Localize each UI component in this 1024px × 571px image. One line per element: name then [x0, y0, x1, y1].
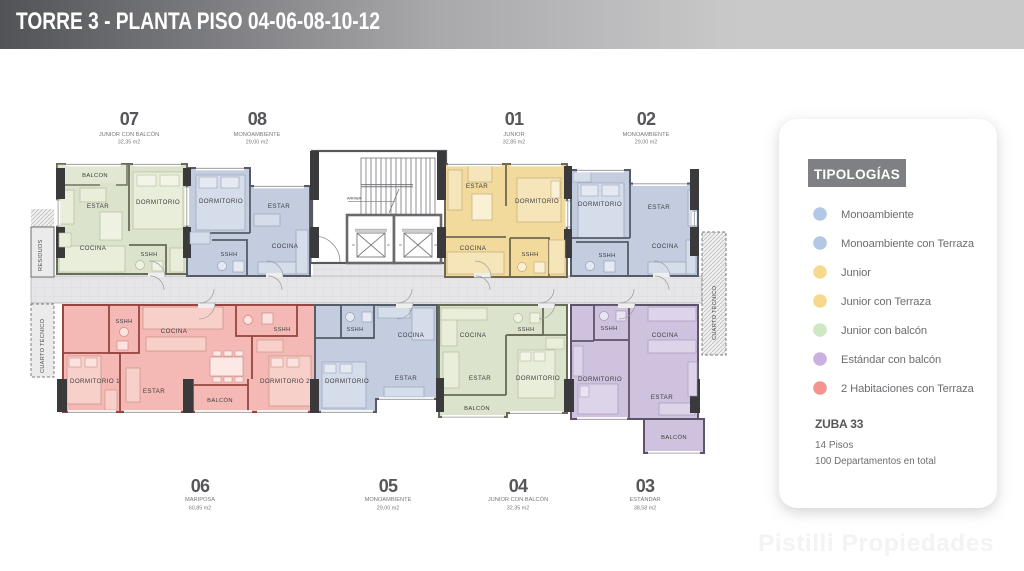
- svg-text:38,58 m2: 38,58 m2: [634, 506, 656, 512]
- svg-text:DORMITORIO: DORMITORIO: [199, 198, 243, 205]
- svg-text:32,35 m2: 32,35 m2: [507, 506, 529, 512]
- svg-text:ARRIBA: ARRIBA: [347, 197, 362, 201]
- svg-text:ESTAR: ESTAR: [143, 388, 165, 395]
- svg-text:SSHH: SSHH: [517, 327, 534, 333]
- svg-text:JUNIOR: JUNIOR: [503, 132, 524, 138]
- svg-text:CUARTO TÉCNICO: CUARTO TÉCNICO: [711, 285, 718, 340]
- svg-text:ESTAR: ESTAR: [651, 394, 673, 401]
- svg-text:Junior con balcón: Junior con balcón: [841, 325, 927, 337]
- svg-text:2 Habitaciones con Terraza: 2 Habitaciones con Terraza: [841, 383, 975, 395]
- svg-text:02: 02: [637, 109, 656, 129]
- svg-text:ESTAR: ESTAR: [466, 183, 488, 190]
- svg-text:04: 04: [509, 476, 528, 496]
- svg-text:ZUBA 33: ZUBA 33: [815, 417, 864, 431]
- svg-text:Estándar con balcón: Estándar con balcón: [841, 354, 941, 366]
- svg-text:SSHH: SSHH: [598, 253, 615, 259]
- svg-text:JUNIOR CON BALCÓN: JUNIOR CON BALCÓN: [488, 496, 548, 503]
- svg-text:SSHH: SSHH: [346, 327, 363, 333]
- svg-text:RESIDUOS: RESIDUOS: [38, 239, 44, 271]
- svg-text:08: 08: [248, 109, 267, 129]
- svg-text:SSHH: SSHH: [521, 252, 538, 258]
- svg-text:SSHH: SSHH: [140, 252, 157, 258]
- svg-text:BALCÓN: BALCÓN: [661, 434, 687, 441]
- svg-text:32,85 m2: 32,85 m2: [503, 140, 525, 146]
- svg-text:Junior: Junior: [841, 267, 871, 279]
- svg-text:CUARTO TÉCNICO: CUARTO TÉCNICO: [39, 318, 46, 373]
- svg-text:MONOAMBIENTE: MONOAMBIENTE: [623, 132, 670, 138]
- svg-text:ESTAR: ESTAR: [469, 375, 491, 382]
- svg-text:29,00 m2: 29,00 m2: [246, 140, 268, 146]
- svg-text:60,85 m2: 60,85 m2: [189, 506, 211, 512]
- svg-text:COCINA: COCINA: [272, 243, 299, 250]
- svg-text:SSHH: SSHH: [273, 327, 290, 333]
- svg-text:JUNIOR CON BALCÓN: JUNIOR CON BALCÓN: [99, 131, 159, 138]
- svg-text:MONOAMBIENTE: MONOAMBIENTE: [234, 132, 281, 138]
- svg-text:BALCÓN: BALCÓN: [207, 397, 233, 404]
- svg-text:DORMITORIO 1: DORMITORIO 1: [70, 378, 120, 385]
- svg-text:COCINA: COCINA: [460, 245, 487, 252]
- svg-text:TORRE 3 - PLANTA PISO 04-06-08: TORRE 3 - PLANTA PISO 04-06-08-10-12: [16, 8, 380, 35]
- svg-text:DORMITORIO: DORMITORIO: [578, 201, 622, 208]
- svg-text:14 Pisos: 14 Pisos: [815, 440, 853, 451]
- svg-text:Junior con Terraza: Junior con Terraza: [841, 296, 932, 308]
- svg-text:Pistilli Propiedades: Pistilli Propiedades: [758, 530, 994, 557]
- svg-text:03: 03: [636, 476, 655, 496]
- svg-text:DORMITORIO: DORMITORIO: [136, 199, 180, 206]
- svg-text:01: 01: [505, 109, 524, 129]
- svg-text:COCINA: COCINA: [161, 328, 188, 335]
- svg-text:COCINA: COCINA: [460, 332, 487, 339]
- svg-text:COCINA: COCINA: [652, 243, 679, 250]
- svg-text:29,00 m2: 29,00 m2: [635, 140, 657, 146]
- svg-text:BALCON: BALCON: [82, 173, 108, 179]
- svg-text:MARIPOSA: MARIPOSA: [185, 497, 215, 503]
- svg-text:DORMITORIO: DORMITORIO: [515, 198, 559, 205]
- svg-text:29,00 m2: 29,00 m2: [377, 506, 399, 512]
- svg-text:ESTAR: ESTAR: [87, 203, 109, 210]
- svg-text:ESTÁNDAR: ESTÁNDAR: [630, 496, 661, 503]
- svg-text:BALCÓN: BALCÓN: [464, 405, 490, 412]
- svg-text:DORMITORIO: DORMITORIO: [516, 375, 560, 382]
- svg-text:07: 07: [120, 109, 139, 129]
- svg-text:32,35 m2: 32,35 m2: [118, 140, 140, 146]
- svg-text:COCINA: COCINA: [652, 332, 679, 339]
- svg-text:DORMITORIO: DORMITORIO: [578, 376, 622, 383]
- svg-text:ESTAR: ESTAR: [268, 203, 290, 210]
- svg-text:Monoambiente: Monoambiente: [841, 209, 914, 221]
- svg-text:100 Departamentos en total: 100 Departamentos en total: [815, 456, 936, 467]
- svg-text:ESTAR: ESTAR: [395, 375, 417, 382]
- svg-text:SSHH: SSHH: [115, 319, 132, 325]
- svg-text:COCINA: COCINA: [398, 332, 425, 339]
- svg-text:SSHH: SSHH: [220, 252, 237, 258]
- svg-text:06: 06: [191, 476, 210, 496]
- svg-text:MONOAMBIENTE: MONOAMBIENTE: [365, 497, 412, 503]
- svg-text:SSHH: SSHH: [600, 326, 617, 332]
- svg-text:DORMITORIO: DORMITORIO: [325, 378, 369, 385]
- svg-text:05: 05: [379, 476, 398, 496]
- svg-text:ESTAR: ESTAR: [648, 204, 670, 211]
- svg-text:COCINA: COCINA: [80, 245, 107, 252]
- svg-text:Monoambiente con Terraza: Monoambiente con Terraza: [841, 238, 975, 250]
- svg-text:TIPOLOGÍAS: TIPOLOGÍAS: [814, 167, 900, 182]
- svg-text:DORMITORIO 2: DORMITORIO 2: [260, 378, 310, 385]
